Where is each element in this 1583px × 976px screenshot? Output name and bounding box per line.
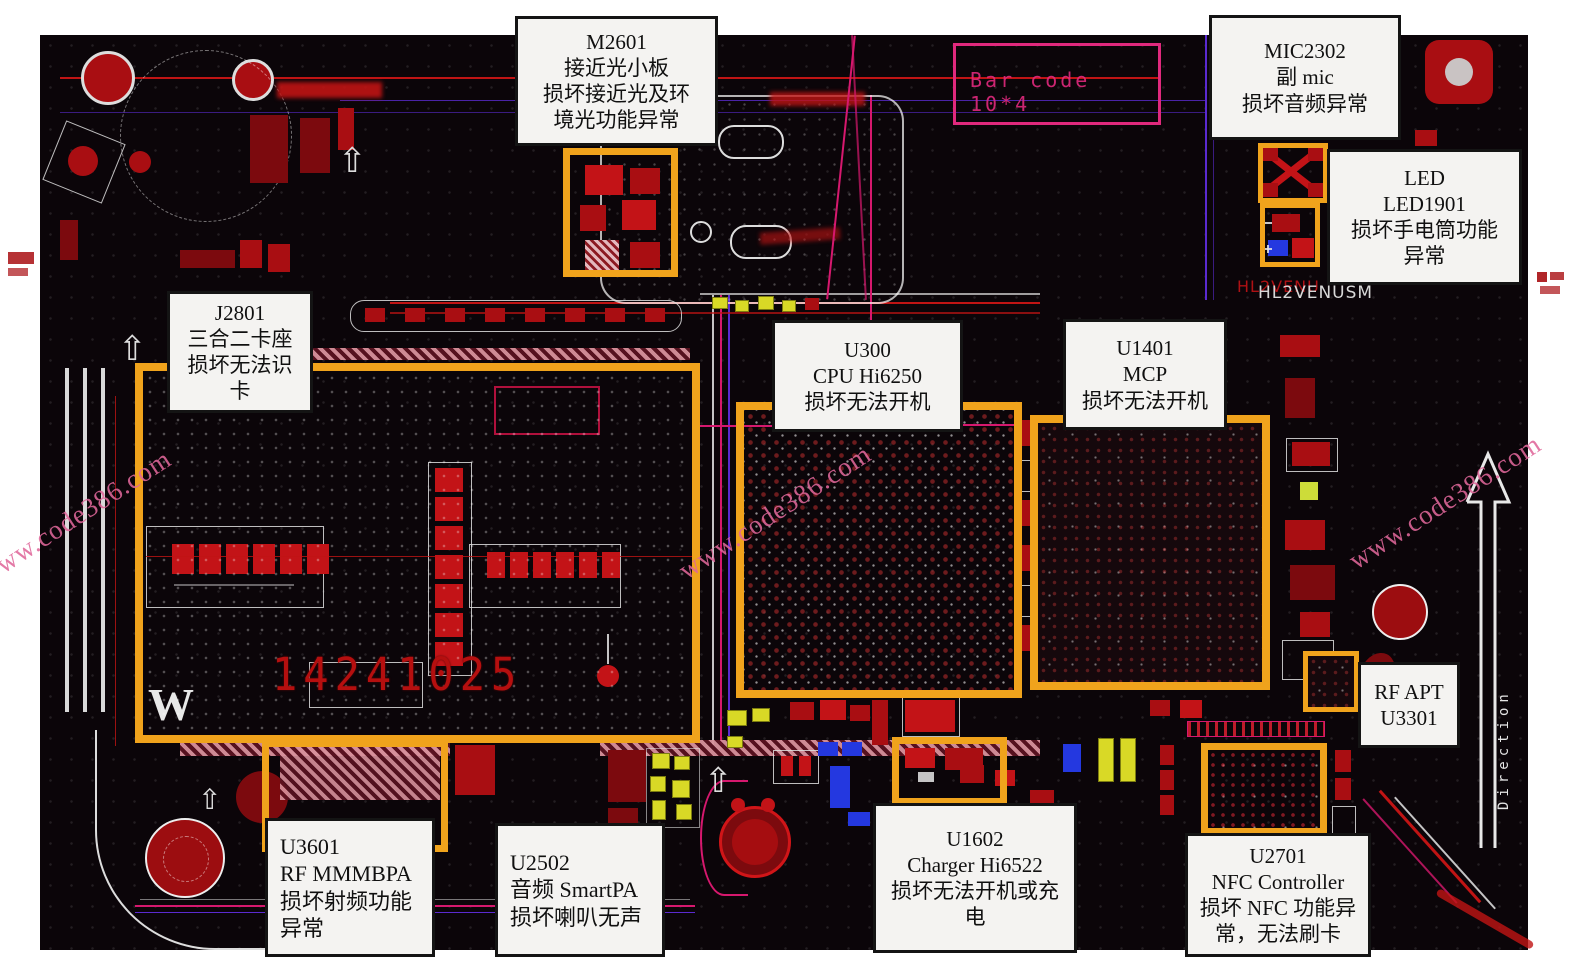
callout-line: NFC Controller [1212,869,1344,895]
pcb-fault-diagram: Bar code 10*4 14241025 HL2VENU HL2VENUSM… [0,0,1583,976]
pcb-decor-shape [1335,778,1351,800]
pcb-decor-shape [782,300,796,312]
pcb-decor-shape [1372,584,1428,640]
highlight-box-u1401 [1030,415,1270,690]
pcb-decor-shape [1160,745,1174,765]
callout-u3601: U3601RF MMMBPA损坏射频功能异常 [265,818,435,957]
up-arrow-icon: ⇧ [198,786,221,814]
callout-line: RF APT [1374,679,1443,705]
callout-mic2302: MIC2302副 mic损坏音频异常 [1209,15,1401,140]
pcb-decor-shape [672,780,690,798]
pcb-decor-shape [872,700,888,745]
pcb-decor-shape [300,118,330,173]
pcb-decor-shape [905,700,955,732]
pcb-decor-shape [758,296,774,310]
pcb-decor-shape [1160,770,1174,790]
pcb-decor-shape [805,298,819,310]
pcb-decor-shape [608,750,646,802]
pcb-decor-shape [690,221,712,243]
pcb-decor-shape [645,308,665,322]
pcb-decor-shape [277,82,382,98]
callout-line: 损坏 NFC 功能异 [1200,895,1356,921]
callout-line: 副 mic [1276,64,1334,90]
pcb-decor-shape [842,742,862,756]
callout-line: 接近光小板 [564,55,669,81]
pcb-decor-shape [752,708,770,722]
pcb-decor-shape [818,742,838,756]
callout-line: M2601 [586,29,647,55]
callout-u300: U300CPU Hi6250损坏无法开机 [772,320,963,432]
callout-line: 音频 SmartPA [510,876,638,903]
pcb-decor-shape [1120,738,1136,782]
pcb-decor-shape [1300,482,1318,500]
callout-line: 异常 [280,915,324,942]
pcb-decor-shape [650,776,666,792]
pcb-decor-shape [820,700,846,720]
pcb-decor-shape [1335,750,1351,772]
callout-line: RF MMMBPA [280,860,412,887]
pcb-decor-shape [674,756,690,770]
highlight-box-u2701 [1201,743,1327,835]
callout-line: U1602 [946,826,1003,852]
callout-line: MIC2302 [1264,38,1346,64]
callout-m2601: M2601接近光小板损坏接近光及环境光功能异常 [515,16,718,146]
pcb-decor-shape [1180,700,1202,718]
callout-line: 损坏无法开机 [1082,388,1208,414]
pcb-decor-shape [1540,286,1560,294]
highlight-box-u300 [736,402,1022,698]
pcb-decor-shape [719,806,791,878]
callout-line: 境光功能异常 [554,107,680,133]
pcb-decor-shape [727,736,743,748]
pcb-decor-shape [770,92,865,106]
highlight-box-rf-apt [1303,651,1359,712]
pcb-decor-shape [1285,520,1325,550]
pcb-decor-shape [799,756,811,776]
callout-line: 损坏无法开机 [805,389,931,415]
callout-j2801: J2801三合二卡座损坏无法识卡 [167,291,313,413]
pcb-decor-shape [445,308,465,322]
callout-line: LED [1404,165,1445,191]
callout-u2502: U2502音频 SmartPA损坏喇叭无声 [495,823,665,957]
callout-line: U3601 [280,833,340,860]
pcb-decor-shape [1415,130,1437,146]
callout-u2701: U2701NFC Controller损坏 NFC 功能异常，无法刷卡 [1185,833,1371,957]
pcb-decor-shape [761,798,775,812]
pcb-decor-shape [1550,272,1564,280]
pcb-decor-shape [781,756,793,776]
pcb-decor-shape [268,244,290,272]
callout-line: U1401 [1116,335,1173,361]
pcb-decor-shape [129,151,151,173]
pcb-decor-shape [1098,738,1114,782]
pcb-decor-shape [81,51,135,105]
pcb-decor-shape [1537,272,1547,282]
pcb-decor-shape [115,396,116,746]
pcb-decor-shape [676,804,692,820]
pcb-decor-shape [8,268,28,276]
pcb-decor-shape [350,300,682,332]
pcb-decor-shape [68,146,98,176]
pcb-decor-shape [60,220,78,260]
pcb-decor-shape [1300,612,1330,637]
pcb-decor-shape [1285,378,1315,418]
pcb-decor-shape [712,297,728,309]
pcb-decor-shape [1150,700,1170,716]
direction-label: Direction [1496,480,1512,810]
pcb-decor-shape [1187,721,1325,737]
pcb-decor-shape [8,252,34,264]
callout-line: U2701 [1249,843,1306,869]
pcb-decor-shape [1445,58,1473,86]
highlight-box-led1901 [1260,203,1320,267]
pcb-decor-shape [1063,744,1081,772]
callout-line: 损坏无法开机或充 [891,878,1059,904]
pcb-decor-shape [731,798,745,812]
serial-number-silkscreen: 14241025 [272,648,522,701]
callout-line: U3301 [1380,705,1437,731]
highlight-box-mic2302 [1258,143,1328,203]
callout-line: 损坏音频异常 [1242,91,1368,117]
pcb-decor-shape [850,705,870,721]
pcb-decor-shape [180,250,235,268]
callout-line: 常，无法刷卡 [1215,921,1341,947]
pcb-decor-shape [1205,35,1207,300]
pcb-decor-shape [405,308,425,322]
pcb-decor-shape [1292,442,1330,466]
barcode-label: Bar code 10*4 [970,68,1158,116]
pcb-decor-shape [773,750,819,784]
callout-line: LED1901 [1383,191,1466,217]
pcb-decor-shape [365,308,385,322]
up-arrow-icon: ⇧ [118,332,147,366]
pcb-decor-shape [848,812,870,826]
callout-line: 损坏射频功能 [280,888,412,915]
pcb-decor-shape [1290,565,1335,600]
callout-line: 异常 [1404,243,1446,269]
callout-u1401: U1401MCP损坏无法开机 [1063,319,1227,430]
pcb-decor-shape [525,308,545,322]
pcb-decor-shape [1280,335,1320,357]
callout-u1602: U1602Charger Hi6522损坏无法开机或充电 [873,803,1077,953]
callout-line: 损坏无法识 [188,352,293,378]
highlight-box-m2601 [563,148,678,277]
pcb-decor-shape [250,115,288,183]
pcb-decor-shape [735,300,749,312]
pcb-decor-shape [727,710,747,726]
callout-line: J2801 [215,300,265,326]
callout-line: 损坏喇叭无声 [510,904,642,931]
pcb-decor-shape [565,308,585,322]
pcb-decor-shape [1332,806,1356,834]
pcb-decor-shape [240,240,262,268]
callout-line: CPU Hi6250 [813,363,922,389]
pcb-decor-shape [790,702,814,720]
up-arrow-icon: ⇧ [704,764,733,798]
pcb-decor-shape [485,308,505,322]
callout-line: 电 [965,904,986,930]
pcb-decor-shape [605,308,625,322]
callout-line: 损坏手电筒功能 [1351,217,1498,243]
pcb-decor-shape [250,348,690,360]
callout-line: U300 [844,337,891,363]
pcb-decor-shape [1160,795,1174,815]
pcb-decor-shape [83,368,87,712]
callout-line: 损坏接近光及环 [543,81,690,107]
pcb-decor-shape [718,125,784,159]
silkscreen-white-text: HL2VENUSM [1258,283,1373,303]
pcb-decor-shape [455,745,495,795]
callout-line: 卡 [230,378,251,404]
callout-line: 三合二卡座 [188,326,293,352]
callout-rf-apt: RF APTU3301 [1358,662,1460,748]
callout-line: MCP [1123,361,1167,387]
pcb-decor-shape [652,800,666,820]
callout-line: Charger Hi6522 [907,852,1043,878]
callout-line: U2502 [510,849,570,876]
up-arrow-icon: ⇧ [338,144,367,178]
callout-led1901: LEDLED1901损坏手电筒功能异常 [1327,149,1522,285]
pcb-decor-shape [830,766,850,808]
pcb-decor-shape [101,368,105,712]
pcb-decor-shape [652,753,670,769]
barcode-frame: Bar code 10*4 [953,43,1161,125]
highlight-box-u1602 [892,737,1007,805]
